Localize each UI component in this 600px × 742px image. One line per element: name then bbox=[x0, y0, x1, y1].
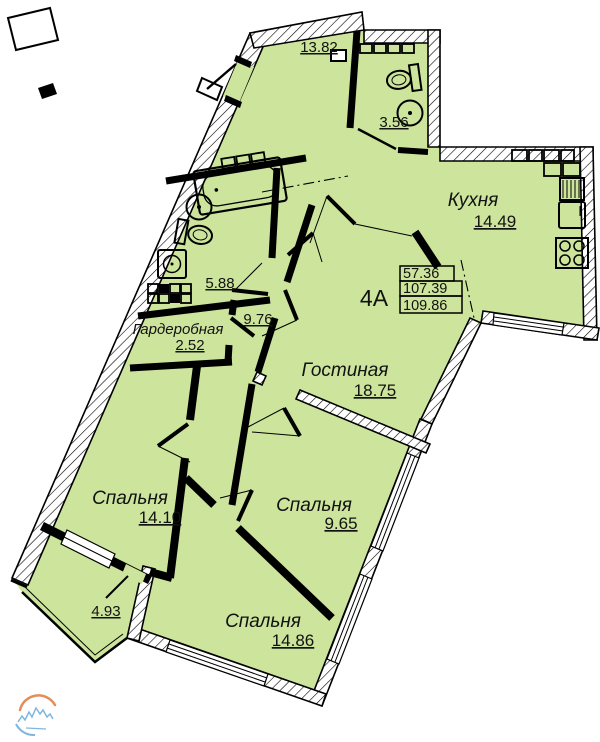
area-wc: 3.56 bbox=[379, 114, 408, 131]
floor-plan-page: 4А 57.36 107.39 109.86 13.82 3.56 Кухня … bbox=[0, 0, 600, 742]
area-living-room: 18.75 bbox=[354, 381, 397, 400]
neighbour-pier bbox=[38, 83, 57, 99]
name-bedroom1: Спальня bbox=[92, 488, 168, 509]
entrance-stub bbox=[197, 78, 222, 100]
area-hallway: 13.82 bbox=[300, 39, 338, 56]
area-bedroom3: 14.86 bbox=[272, 631, 315, 650]
unit-label: 4А bbox=[360, 285, 389, 311]
area-kitchen: 14.49 bbox=[474, 212, 517, 231]
name-kitchen: Кухня bbox=[448, 190, 499, 211]
unit-area-overall: 109.86 bbox=[403, 298, 447, 314]
apartment-floor bbox=[12, 12, 597, 706]
wall-wc-right bbox=[428, 30, 440, 147]
neighbour-structures bbox=[8, 8, 222, 100]
area-corridor: 9.76 bbox=[243, 311, 272, 328]
area-bathroom: 5.88 bbox=[205, 275, 234, 292]
name-bedroom2: Спальня bbox=[276, 495, 352, 516]
developer-logo bbox=[16, 695, 55, 735]
unit-area-living: 57.36 bbox=[403, 266, 439, 282]
neighbour-wall bbox=[8, 8, 58, 50]
unit-area-total: 107.39 bbox=[403, 281, 447, 297]
floor-plan: 4А 57.36 107.39 109.86 13.82 3.56 Кухня … bbox=[0, 0, 600, 742]
area-bedroom2: 9.65 bbox=[324, 514, 357, 533]
name-bedroom3: Спальня bbox=[225, 611, 301, 632]
area-wardrobe: 2.52 bbox=[175, 337, 204, 354]
area-bedroom1: 14.10 bbox=[139, 508, 182, 527]
area-balcony: 4.93 bbox=[91, 603, 120, 620]
name-living: Гостиная bbox=[302, 360, 389, 381]
name-wardrobe: Гардеробная bbox=[133, 321, 224, 338]
